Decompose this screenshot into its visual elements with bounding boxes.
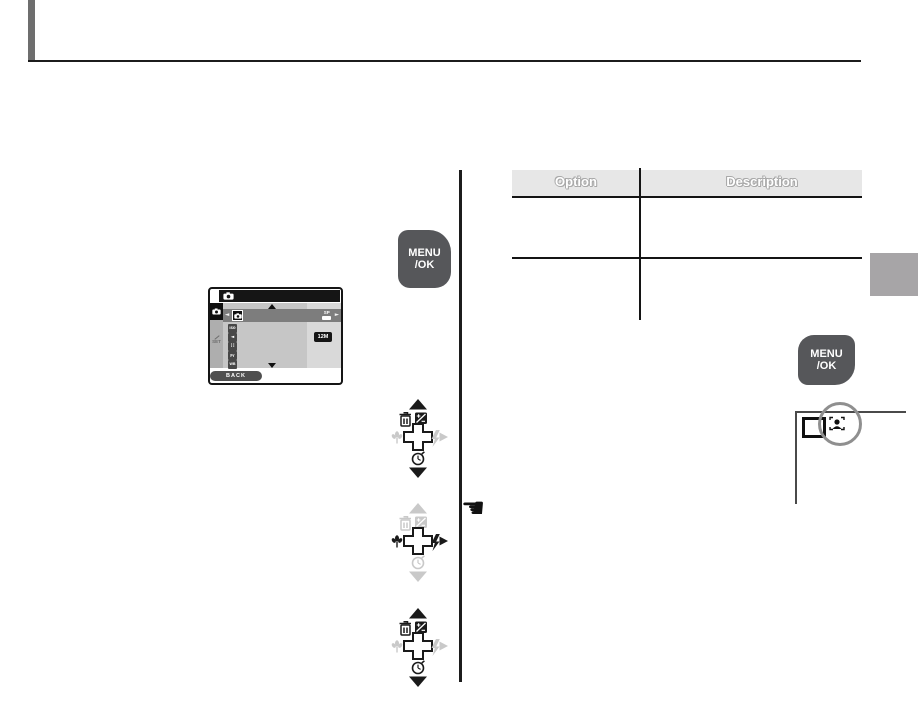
- self-timer-icon: [413, 556, 425, 569]
- delete-icon: [400, 517, 412, 530]
- selected-menu-row: ◄ SP ►: [223, 309, 341, 322]
- selector-pad: [390, 606, 450, 688]
- shooting-mode-icon: [232, 310, 243, 321]
- menu-item-finepix-color-icon: Fr: [228, 351, 237, 360]
- table-header-description: Description: [672, 174, 852, 189]
- exposure-compensation-icon: [415, 622, 427, 634]
- scene-position-label: SP: [321, 311, 333, 316]
- menu-ok-button: MENU /OK: [398, 230, 451, 288]
- shooting-menu-tab: [210, 303, 223, 320]
- right-arrow-icon: [440, 642, 449, 651]
- selector-cross: [404, 633, 432, 659]
- self-timer-icon: [413, 452, 425, 465]
- self-timer-icon: [413, 661, 425, 674]
- right-arrow-icon: [440, 433, 449, 442]
- lcd-frame-left: [795, 411, 797, 504]
- cursor-left-icon: ◄: [225, 313, 229, 319]
- down-arrow-icon: [409, 677, 427, 688]
- back-button-label: BACK: [210, 371, 262, 381]
- macro-icon: [391, 535, 403, 547]
- menu-item-sound-icon: ◄: [228, 333, 237, 342]
- table-header-border: [512, 196, 862, 198]
- selector-pad: [390, 397, 450, 479]
- scroll-down-icon: [268, 363, 276, 368]
- camera-menu-screenshot: SET ◄ SP ► ISO ◄ ∷ Fr WB 1: [208, 287, 343, 385]
- camera-icon: [223, 292, 234, 300]
- table-header-option: Option: [538, 174, 614, 189]
- menu-item-quality-icon: ∷: [228, 342, 237, 351]
- macro-icon: [391, 640, 403, 652]
- header-rule: [28, 60, 861, 62]
- selector-cross: [404, 424, 432, 450]
- macro-icon: [391, 431, 403, 443]
- up-arrow-icon: [409, 399, 427, 410]
- annotation-circle: [818, 402, 862, 446]
- table-column-divider: [639, 168, 641, 320]
- section-tab: [870, 253, 918, 296]
- setup-menu-tab: SET: [210, 337, 223, 344]
- manual-page: SET ◄ SP ► ISO ◄ ∷ Fr WB 1: [0, 0, 918, 726]
- down-arrow-icon: [409, 468, 427, 479]
- column-divider: [459, 170, 462, 682]
- selector-cross: [404, 528, 432, 554]
- options-table: Option Description: [512, 168, 862, 320]
- cursor-right-icon: ►: [335, 313, 339, 319]
- right-arrow-icon: [440, 537, 449, 546]
- menu-ok-button: MENU /OK: [798, 335, 855, 385]
- selector-pad: [390, 501, 450, 583]
- setup-tab-label: SET: [212, 339, 221, 344]
- header-edge-bar: [28, 0, 35, 61]
- resolution-badge: 12M: [314, 332, 332, 342]
- delete-icon: [400, 413, 412, 426]
- scene-position-icon: SP: [321, 311, 333, 321]
- lcd-screen-detail: [795, 411, 907, 505]
- menu-title-bar: [219, 290, 340, 302]
- up-arrow-icon: [409, 503, 427, 514]
- exposure-compensation-icon: [415, 413, 427, 425]
- camera-icon: [234, 313, 242, 319]
- delete-icon: [400, 622, 412, 635]
- camera-icon: [212, 308, 221, 315]
- up-arrow-icon: [409, 608, 427, 619]
- table-row-divider: [512, 257, 862, 259]
- down-arrow-icon: [409, 572, 427, 583]
- frame-brackets-icon: [802, 417, 814, 438]
- pointing-hand-icon: ☚: [461, 495, 485, 522]
- exposure-compensation-icon: [415, 517, 427, 529]
- menu-item-iso-icon: ISO: [228, 324, 237, 333]
- menu-item-white-balance-icon: WB: [228, 360, 237, 369]
